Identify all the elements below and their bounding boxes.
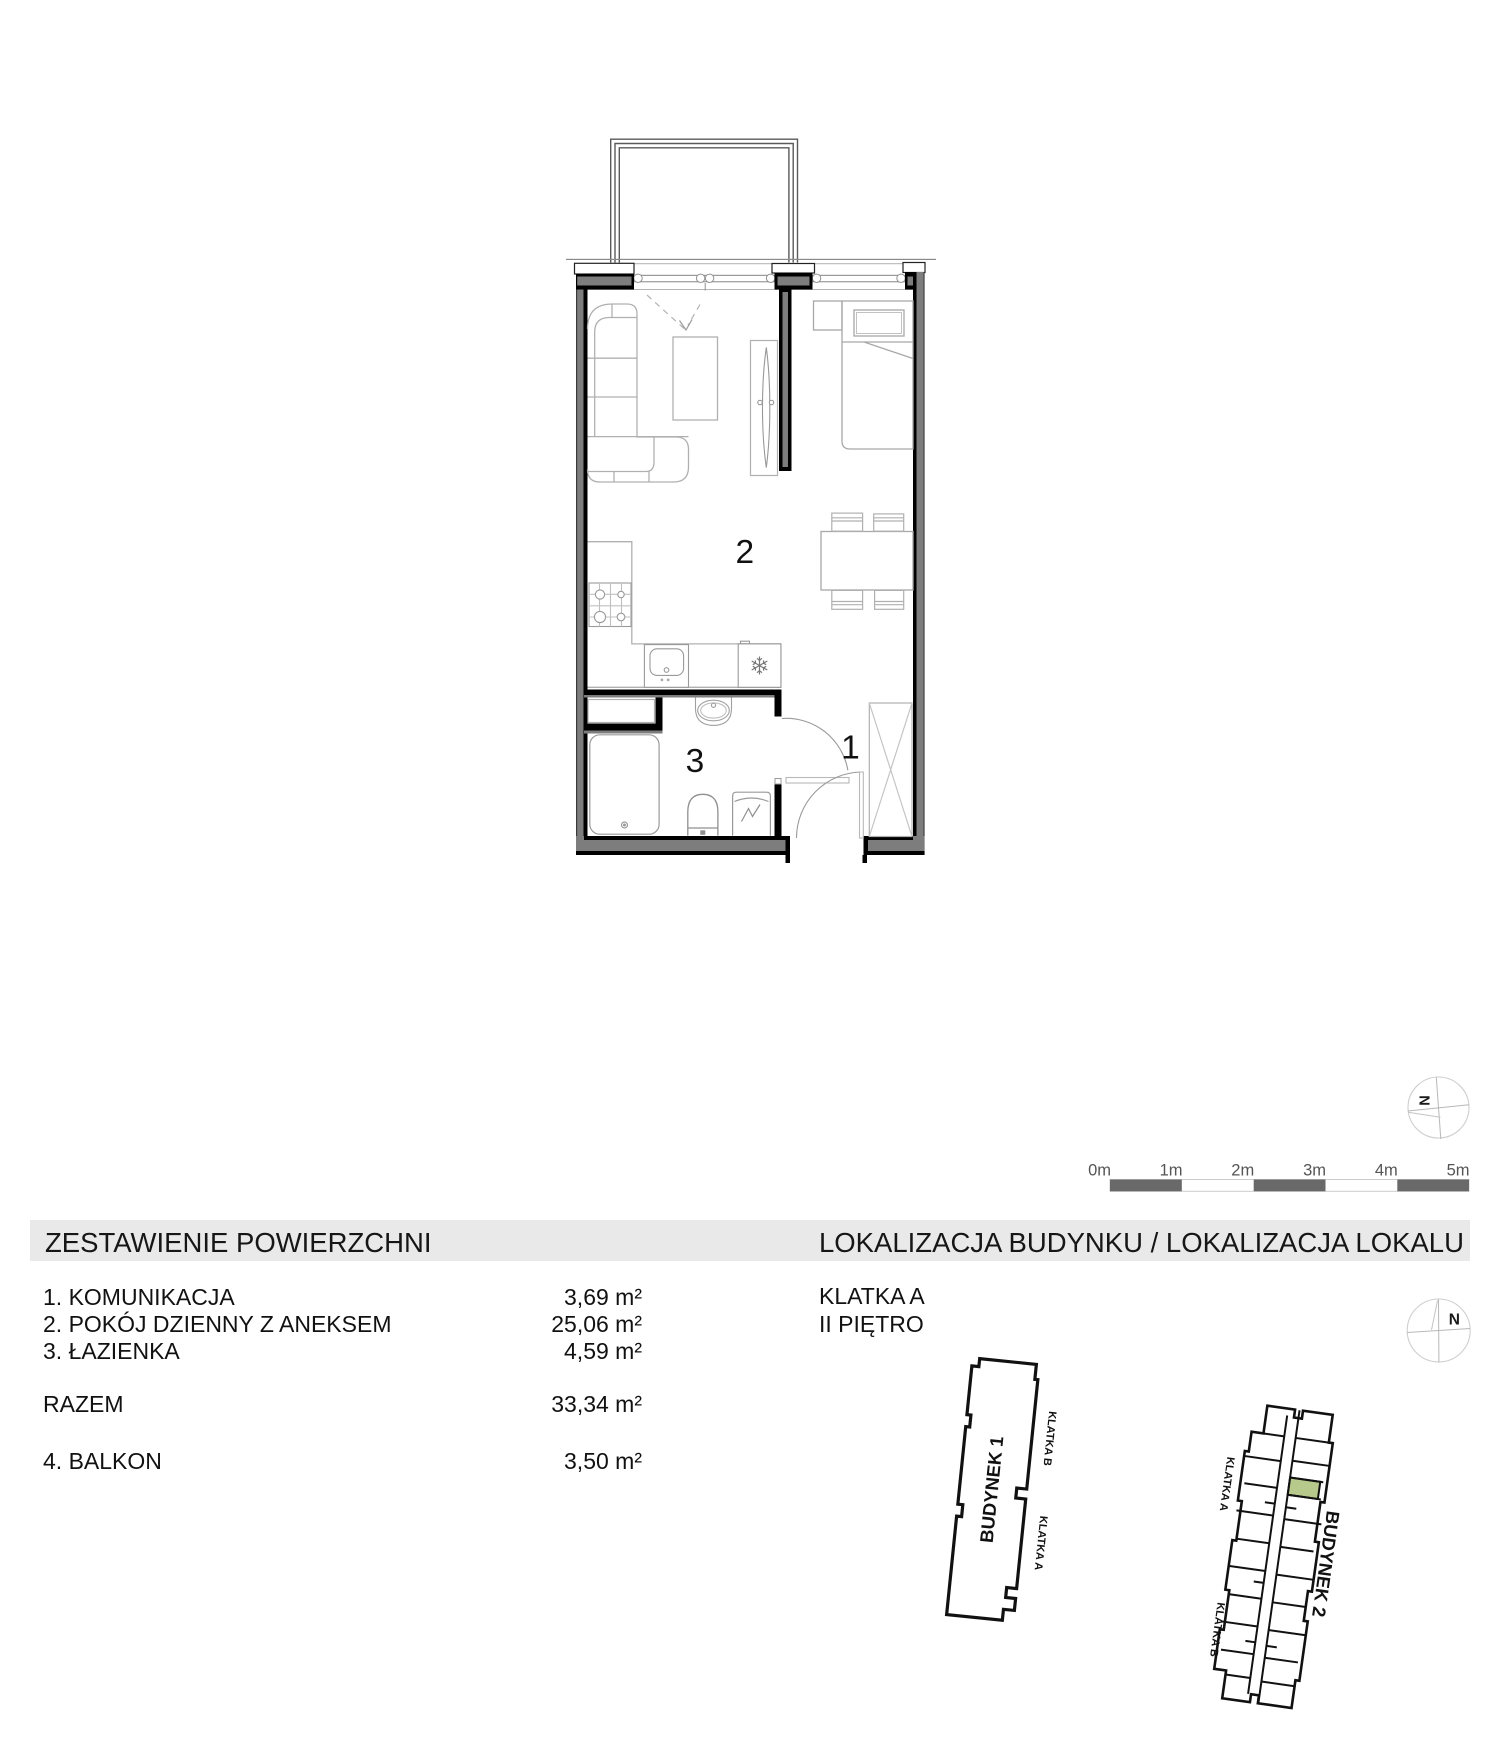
svg-text:KLATKA B: KLATKA B [1041, 1411, 1059, 1467]
svg-text:5m: 5m [1447, 1162, 1470, 1180]
svg-text:2: 2 [735, 534, 754, 571]
svg-text:3m: 3m [1303, 1162, 1326, 1180]
svg-text:KLATKA A: KLATKA A [1032, 1515, 1049, 1571]
svg-text:2m: 2m [1231, 1162, 1254, 1180]
svg-text:0m: 0m [1088, 1162, 1111, 1180]
svg-text:1m: 1m [1160, 1162, 1183, 1180]
svg-text:N: N [1418, 1095, 1434, 1105]
svg-text:N: N [1449, 1312, 1460, 1329]
svg-text:1: 1 [841, 730, 860, 767]
svg-text:KLATKA A: KLATKA A [1217, 1456, 1236, 1512]
svg-text:3: 3 [686, 743, 705, 780]
svg-text:4m: 4m [1375, 1162, 1398, 1180]
